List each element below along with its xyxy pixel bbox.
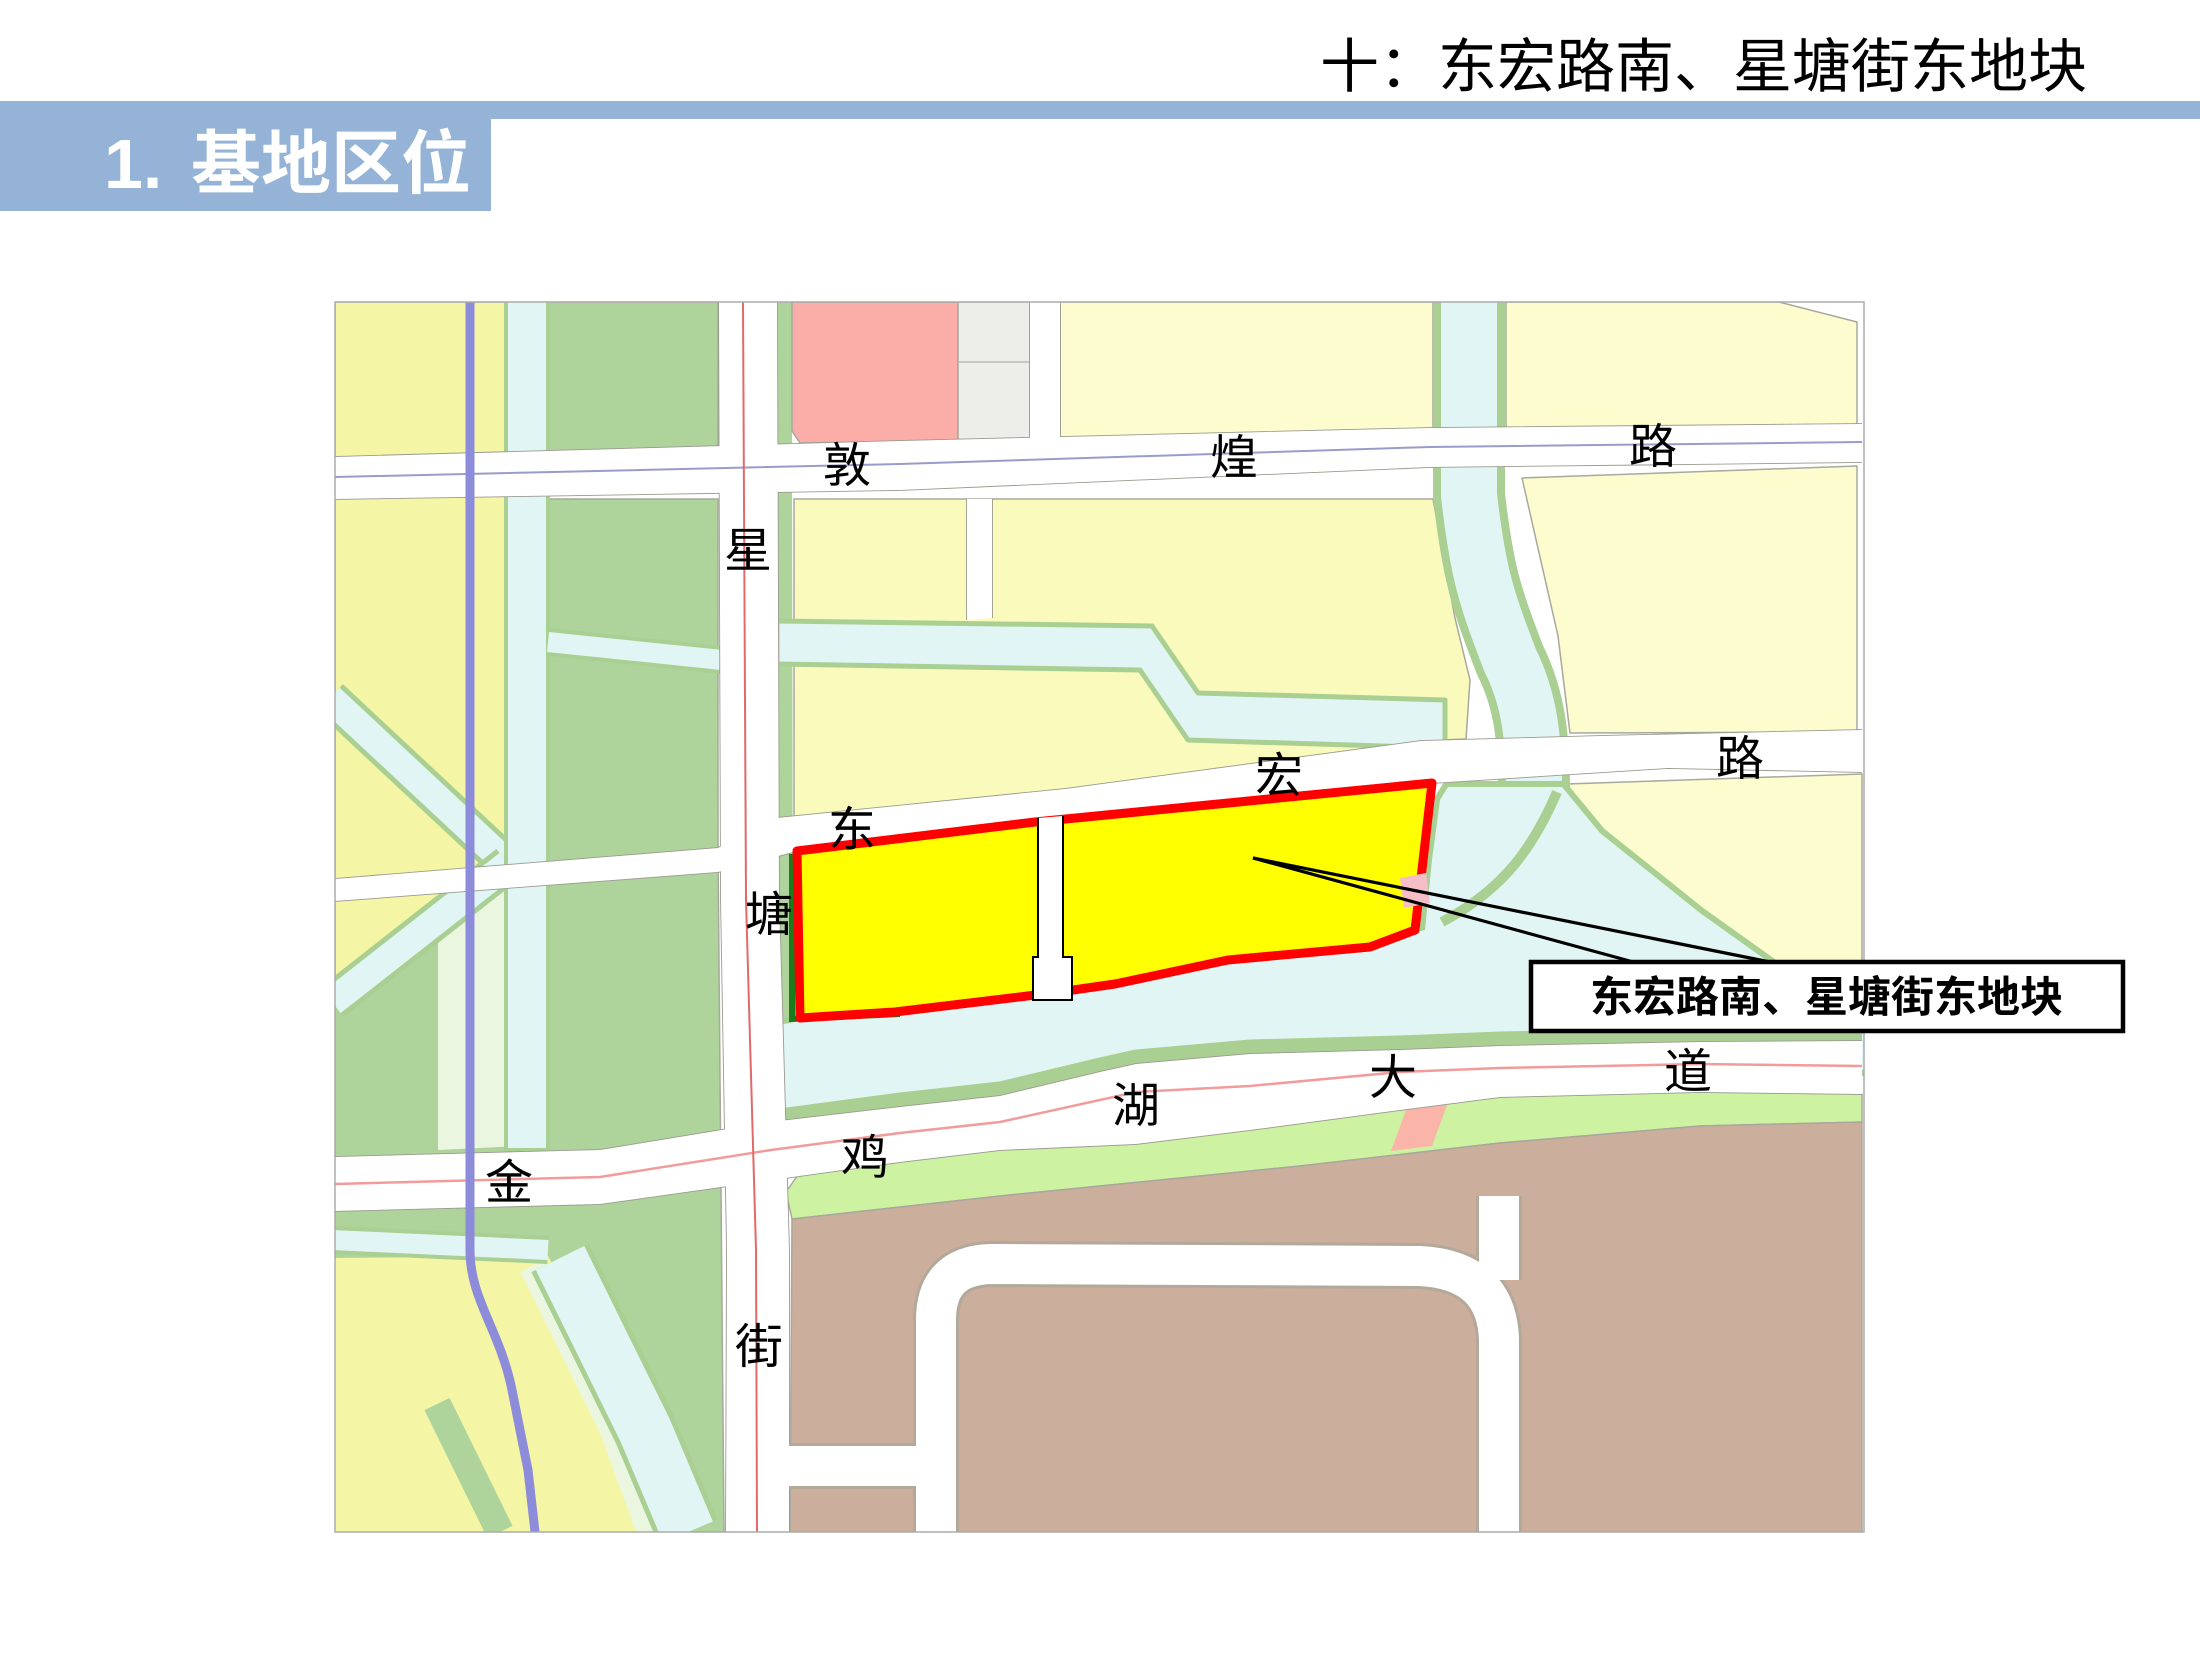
svg-text:1.: 1. [104,125,162,203]
